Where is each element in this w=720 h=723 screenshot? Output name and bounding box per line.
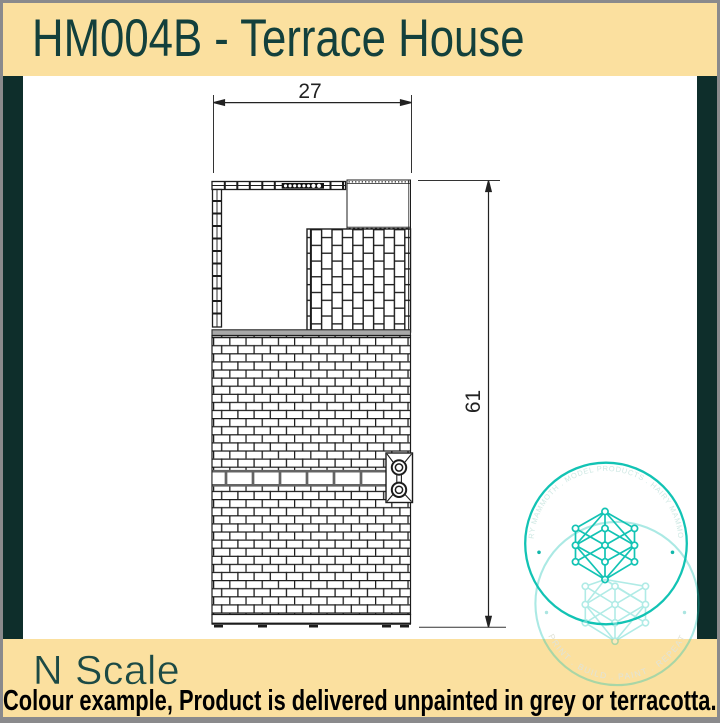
svg-text:61: 61: [462, 390, 485, 413]
svg-text:27: 27: [298, 80, 321, 103]
